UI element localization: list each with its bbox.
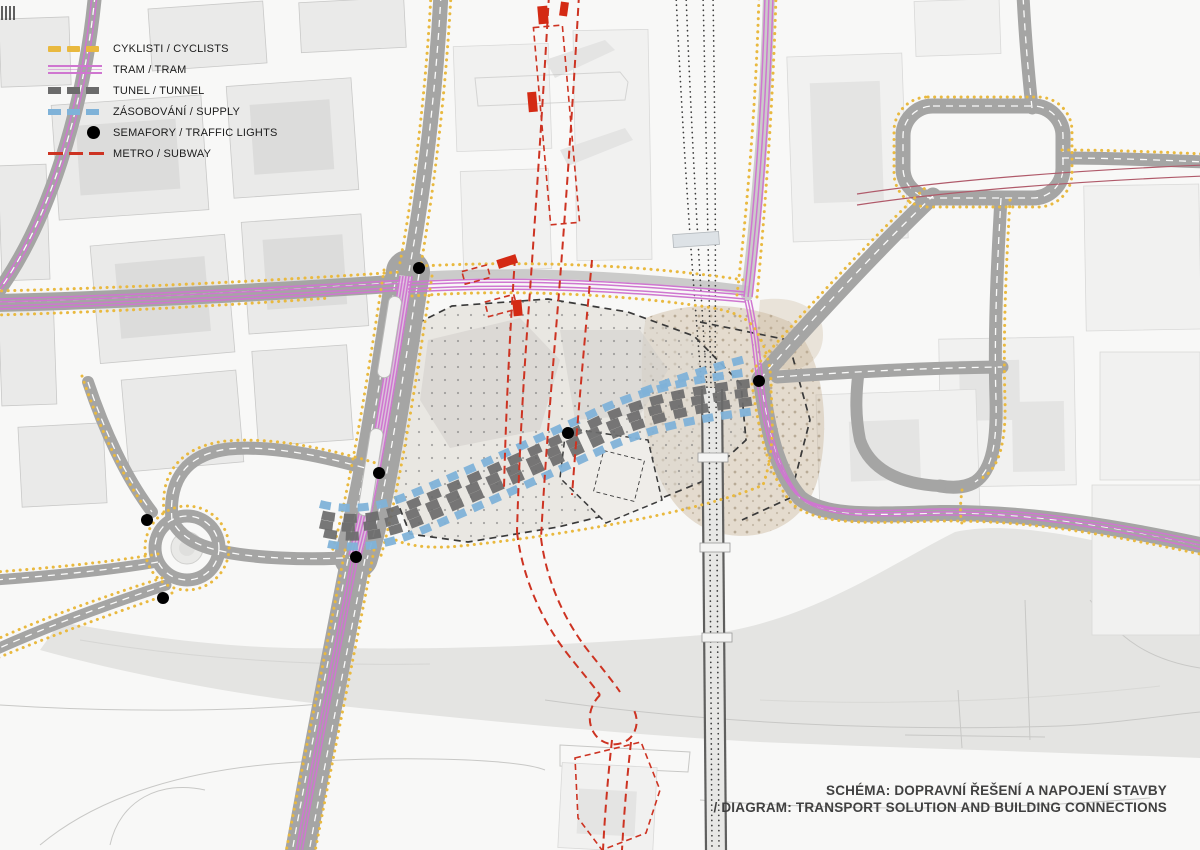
legend-label: ZÁSOBOVÁNÍ / SUPPLY — [113, 106, 240, 118]
traffic-light-dot — [753, 375, 765, 387]
traffic-light-dot — [350, 551, 362, 563]
legend-label: TUNEL / TUNNEL — [113, 85, 204, 97]
rail-platform — [673, 231, 720, 247]
legend-item-cyclists: CYKLISTI / CYCLISTS — [48, 38, 278, 59]
traffic-light-dot — [562, 427, 574, 439]
legend-item-tunnel: TUNEL / TUNNEL — [48, 80, 278, 101]
legend-label: CYKLISTI / CYCLISTS — [113, 43, 229, 55]
caption-line-czech: SCHÉMA: DOPRAVNÍ ŘEŠENÍ A NAPOJENÍ STAVB… — [713, 783, 1167, 799]
traffic-light-dot — [141, 514, 153, 526]
traffic-light-swatch-icon — [48, 126, 104, 139]
legend: CYKLISTI / CYCLISTS TRAM / TRAM TUNEL / … — [48, 38, 278, 164]
caption-line-english: / DIAGRAM: TRANSPORT SOLUTION AND BUILDI… — [713, 800, 1167, 816]
metro-swatch-icon — [48, 152, 104, 156]
legend-label: SEMAFORY / TRAFFIC LIGHTS — [113, 127, 278, 139]
cyclists-swatch-icon — [48, 46, 104, 52]
legend-item-tram: TRAM / TRAM — [48, 59, 278, 80]
diagram-caption: SCHÉMA: DOPRAVNÍ ŘEŠENÍ A NAPOJENÍ STAVB… — [713, 783, 1167, 816]
transport-diagram: CYKLISTI / CYCLISTS TRAM / TRAM TUNEL / … — [0, 0, 1200, 850]
legend-item-traffic-lights: SEMAFORY / TRAFFIC LIGHTS — [48, 122, 278, 143]
supply-swatch-icon — [48, 109, 104, 115]
tunnel-swatch-icon — [48, 87, 104, 94]
traffic-light-dot — [373, 467, 385, 479]
traffic-light-dot — [157, 592, 169, 604]
traffic-light-dot — [413, 262, 425, 274]
legend-label: METRO / SUBWAY — [113, 148, 211, 160]
legend-item-metro: METRO / SUBWAY — [48, 143, 278, 164]
legend-label: TRAM / TRAM — [113, 64, 187, 76]
tram-swatch-icon — [48, 65, 104, 74]
legend-item-supply: ZÁSOBOVÁNÍ / SUPPLY — [48, 101, 278, 122]
